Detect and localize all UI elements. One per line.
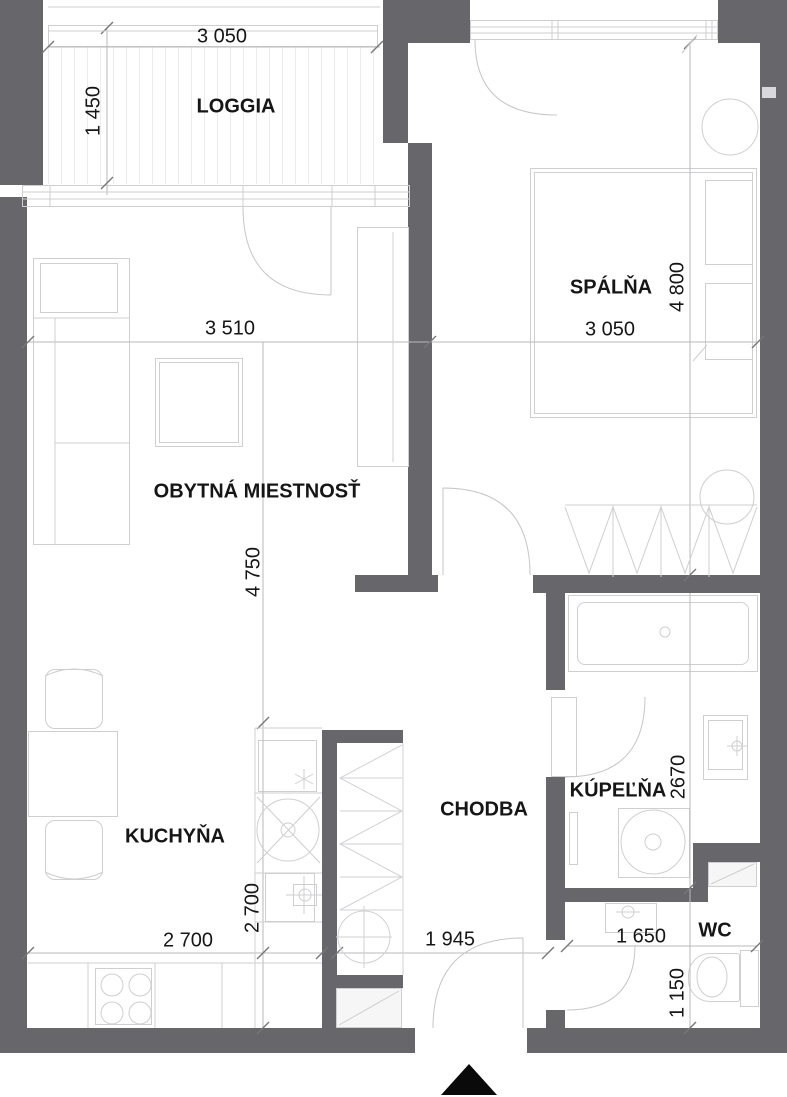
bath-wc-symbols (339, 627, 754, 1025)
dim-wc-height: 1 150 (667, 968, 690, 1018)
dimension-lines (28, 28, 758, 1028)
door-arcs (243, 35, 697, 1028)
burner-4 (129, 1002, 151, 1024)
sofa-lines (33, 318, 130, 545)
dishwasher-asterisk (295, 769, 313, 789)
chair-curves (45, 669, 103, 879)
bedside-circle-top (702, 99, 758, 155)
linework-layer (0, 0, 787, 1097)
dim-loggia-height: 1 450 (83, 86, 106, 136)
room-label-wc: WC (698, 920, 731, 943)
wm-hub (645, 834, 661, 850)
tub-drain (660, 627, 670, 637)
entrance-triangle-icon (441, 1064, 497, 1095)
dim-bath-height: 2670 (668, 755, 691, 800)
kitchen-symbols (28, 669, 322, 1028)
wardrobe-frame (565, 505, 757, 577)
bedside-circle-bottom (700, 470, 754, 524)
entrance-door-arc (433, 938, 523, 1028)
room-label-hall: CHODBA (440, 799, 528, 822)
room-label-living: OBYTNÁ MIESTNOSŤ (154, 481, 361, 504)
closet-shelves (340, 743, 403, 975)
dim-kitchen-width: 2 700 (163, 930, 213, 953)
bedroom-window-arc (475, 35, 697, 115)
dim-living-height: 4 750 (243, 547, 266, 597)
dim-bedroom-height: 4 800 (667, 262, 690, 312)
shaft-diagonal-bath (711, 864, 754, 884)
room-label-loggia: LOGGIA (197, 96, 276, 119)
burner-1 (101, 974, 123, 996)
room-label-bath: KÚPEĽŇA (570, 780, 667, 803)
wm-drum (621, 810, 685, 874)
bedroom-door-arc (443, 488, 530, 575)
burner-2 (129, 974, 151, 996)
room-label-bedroom: SPÁLŇA (570, 277, 652, 300)
dim-living-width: 3 510 (205, 318, 255, 341)
oven-cross (286, 876, 322, 914)
toilet-oval (697, 957, 727, 997)
dim-wc-width: 1 650 (616, 926, 666, 949)
shaft-diagonal-hall (339, 991, 399, 1025)
burner-3 (101, 1002, 123, 1024)
wc-door-arc (567, 945, 635, 1010)
basin-tap-cross (727, 736, 747, 756)
sink-cross (257, 797, 320, 863)
dim-kitchen-height: 2 700 (242, 883, 265, 933)
blanket-fold (693, 345, 707, 361)
closet-zigzag (340, 745, 402, 910)
bathroom-door-arc (565, 697, 645, 777)
room-label-kitchen: KUCHYŇA (125, 826, 225, 849)
balcony-door-arc (243, 207, 331, 295)
dim-hall-width: 1 945 (425, 929, 475, 952)
dim-bedroom-width: 3 050 (585, 319, 635, 342)
hall-closet-symbols (336, 743, 403, 975)
window-detail-lines (22, 7, 718, 207)
closet-circle-cross (336, 906, 392, 968)
dim-loggia-width: 3 050 (197, 26, 247, 49)
counter-edges (28, 728, 322, 1028)
floor-plan: LOGGIA 3 050 1 450 OBYTNÁ MIESTNOSŤ 3 51… (0, 0, 787, 1097)
entrance-marker (441, 1064, 497, 1095)
